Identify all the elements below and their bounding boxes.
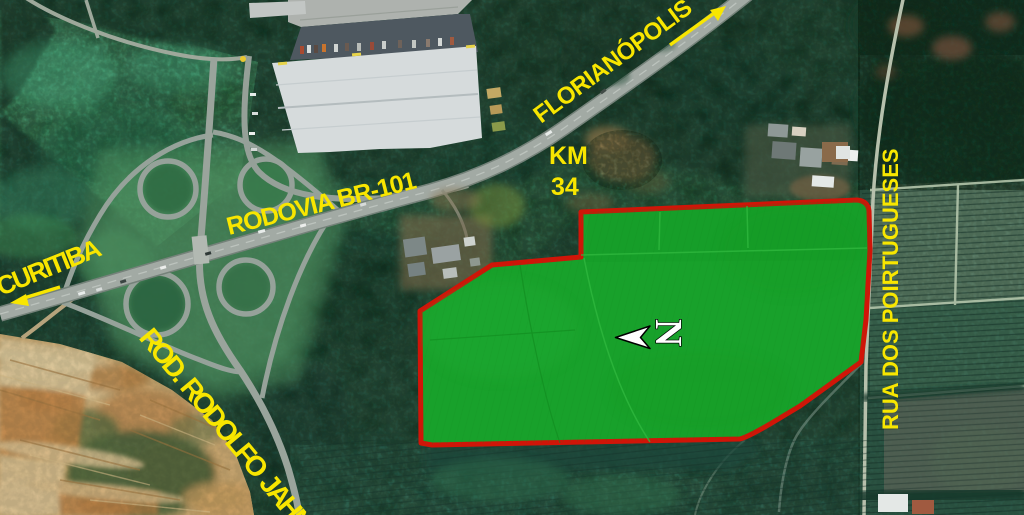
svg-text:KM: KM: [549, 142, 588, 170]
svg-text:RUA DOS POIRTUGUESES: RUA DOS POIRTUGUESES: [878, 148, 903, 430]
svg-text:N: N: [647, 319, 689, 346]
svg-text:34: 34: [551, 173, 579, 201]
